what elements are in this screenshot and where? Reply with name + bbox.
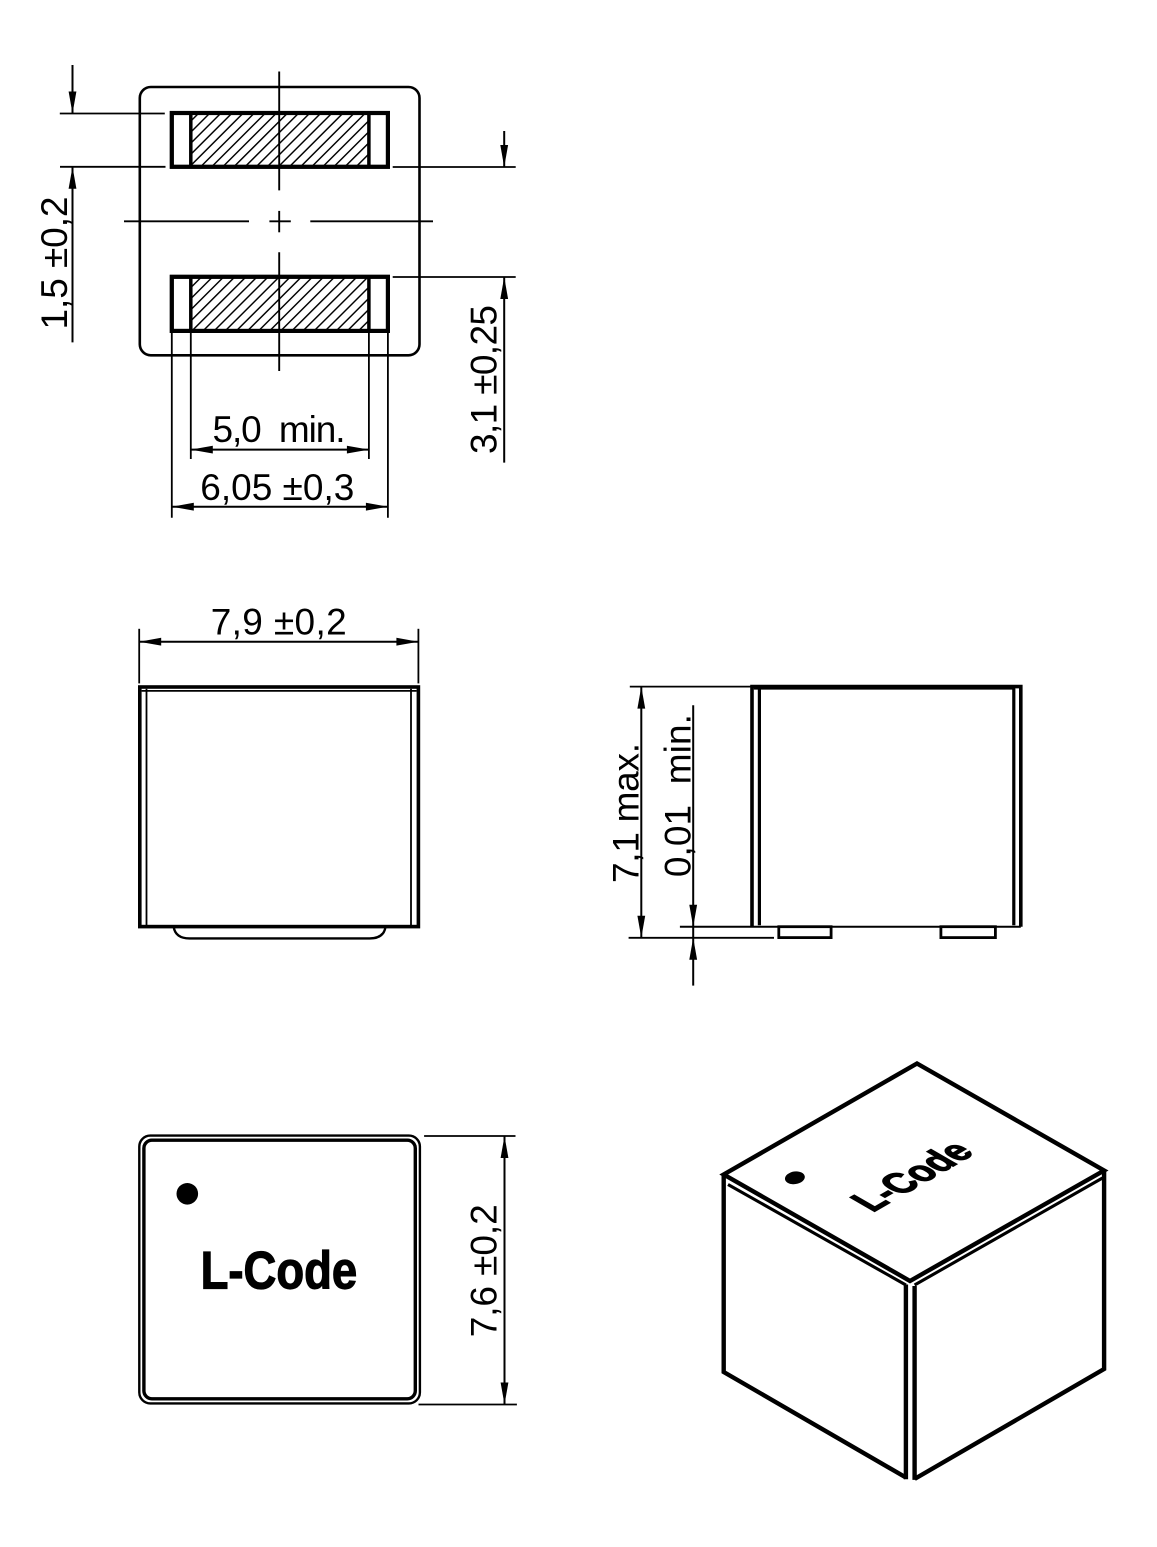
- svg-text:0,01 min.: 0,01 min.: [658, 714, 699, 877]
- svg-text:1,5 ±0,2: 1,5 ±0,2: [34, 197, 75, 330]
- svg-text:L-Code: L-Code: [201, 1242, 358, 1301]
- svg-text:7,1 max.: 7,1 max.: [606, 743, 647, 883]
- svg-text:7,6 ±0,2: 7,6 ±0,2: [464, 1204, 505, 1337]
- svg-text:3,1 ±0,25: 3,1 ±0,25: [464, 305, 505, 454]
- svg-text:5,0 min.: 5,0 min.: [213, 409, 346, 450]
- svg-text:6,05 ±0,3: 6,05 ±0,3: [200, 467, 354, 508]
- svg-text:7,9 ±0,2: 7,9 ±0,2: [211, 602, 347, 643]
